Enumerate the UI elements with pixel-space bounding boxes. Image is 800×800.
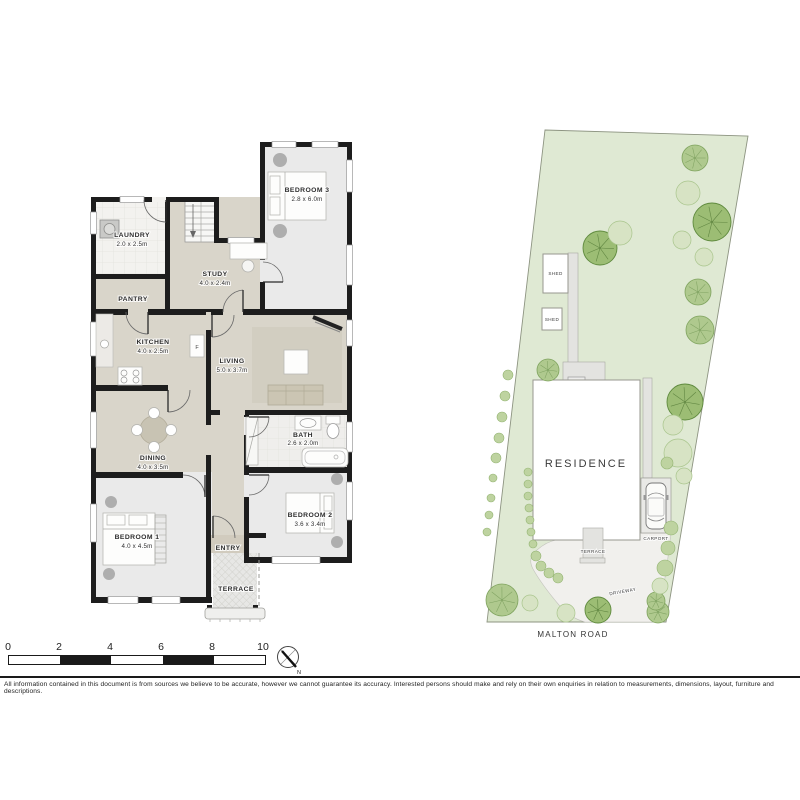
staircase bbox=[185, 200, 217, 242]
scale-tick-2: 2 bbox=[56, 641, 62, 653]
tree-icon bbox=[487, 494, 495, 502]
shed2-label: SHED bbox=[545, 317, 560, 322]
side-table-icon bbox=[331, 473, 343, 485]
tree-icon bbox=[608, 221, 632, 245]
scale-tick-10: 10 bbox=[257, 641, 269, 653]
desk-chair-icon bbox=[242, 260, 254, 272]
footer-divider bbox=[0, 676, 800, 678]
shed1-label: SHED bbox=[548, 271, 563, 276]
tree-icon bbox=[695, 248, 713, 266]
chair-icon bbox=[149, 408, 160, 419]
chair-icon bbox=[132, 425, 143, 436]
car-icon bbox=[644, 483, 669, 529]
bedroom3-label: BEDROOM 3 bbox=[285, 187, 330, 194]
tree-icon bbox=[663, 415, 683, 435]
scale-tick-6: 6 bbox=[158, 641, 164, 653]
bedroom3-dims: 2.8 x 6.0m bbox=[292, 196, 323, 203]
side-path bbox=[568, 253, 578, 363]
bedroom1-label: BEDROOM 1 bbox=[115, 534, 160, 541]
kitchen-sink-icon bbox=[101, 340, 109, 348]
dining-label: DINING bbox=[140, 455, 166, 462]
tree-icon bbox=[526, 516, 534, 524]
side-table-icon bbox=[273, 153, 287, 167]
tree-icon bbox=[522, 595, 538, 611]
tree-icon bbox=[557, 604, 575, 622]
tree-icon bbox=[676, 181, 700, 205]
pillow-icon bbox=[324, 496, 332, 511]
tree-icon bbox=[529, 540, 537, 548]
coffee-table-icon bbox=[284, 350, 308, 374]
bedroom2-dims: 3.6 x 3.4m bbox=[295, 521, 326, 528]
tree-icon bbox=[524, 492, 532, 500]
tree-icon bbox=[531, 551, 541, 561]
tree-icon bbox=[485, 511, 493, 519]
toilet-icon bbox=[327, 424, 339, 439]
tree-icon bbox=[664, 521, 678, 535]
chair-icon bbox=[166, 425, 177, 436]
compass-icon: N bbox=[273, 643, 307, 679]
vanity-icon bbox=[295, 416, 321, 430]
tree-icon bbox=[657, 560, 673, 576]
side-table-icon bbox=[273, 224, 287, 238]
terrace-label: TERRACE bbox=[218, 586, 254, 593]
kitchen-label: KITCHEN bbox=[136, 339, 169, 346]
pantry-floor bbox=[91, 274, 170, 315]
floor-plan: F bbox=[80, 130, 365, 625]
tree-icon bbox=[676, 468, 692, 484]
tree-icon bbox=[503, 370, 513, 380]
pillow-icon bbox=[270, 197, 280, 215]
bedroom2-label: BEDROOM 2 bbox=[288, 512, 333, 519]
tree-icon bbox=[524, 480, 532, 488]
tree-icon bbox=[661, 457, 673, 469]
living-label: LIVING bbox=[219, 358, 244, 365]
carport-path bbox=[643, 378, 652, 478]
living-dims: 5.0 x 3.7m bbox=[217, 367, 248, 374]
laundry-label: LAUNDRY bbox=[114, 232, 150, 239]
scale-bar-segments bbox=[8, 655, 266, 665]
tree-icon bbox=[489, 474, 497, 482]
site-terrace-step bbox=[580, 558, 605, 563]
toilet-tank-icon bbox=[326, 416, 340, 424]
study-label: STUDY bbox=[202, 271, 227, 278]
tree-icon bbox=[544, 568, 554, 578]
sofa-icon bbox=[268, 385, 323, 405]
tree-icon bbox=[497, 412, 507, 422]
floorplan-document: F bbox=[0, 0, 800, 800]
scale-bar: 0 2 4 6 8 10 bbox=[8, 641, 266, 667]
side-table-icon bbox=[331, 536, 343, 548]
tree-icon bbox=[491, 453, 501, 463]
disclaimer-text: All information contained in this docume… bbox=[4, 681, 797, 695]
pillow-icon bbox=[129, 515, 147, 525]
laundry-dims: 2.0 x 2.5m bbox=[117, 241, 148, 248]
chair-icon bbox=[149, 442, 160, 453]
bath-label: BATH bbox=[293, 432, 313, 439]
bedroom1-dims: 4.0 x 4.5m bbox=[122, 543, 153, 550]
step-edge bbox=[210, 619, 260, 622]
desk-icon bbox=[230, 243, 267, 259]
kitchen-dims: 4.0 x 2.5m bbox=[138, 348, 169, 355]
tree-icon bbox=[673, 231, 691, 249]
tree-icon bbox=[553, 573, 563, 583]
bath-dims: 2.6 x 2.0m bbox=[288, 440, 319, 447]
scale-tick-4: 4 bbox=[107, 641, 113, 653]
study-dims: 4.0 x 2.4m bbox=[200, 280, 231, 287]
tree-icon bbox=[527, 528, 535, 536]
tree-icon bbox=[500, 391, 510, 401]
tree-icon bbox=[536, 561, 546, 571]
entry-label: ENTRY bbox=[216, 545, 241, 552]
site-plan: SHED SHED RESIDENCE TERRACE CARPORT DRIV… bbox=[480, 125, 755, 650]
tree-icon bbox=[483, 528, 491, 536]
tree-icon bbox=[524, 468, 532, 476]
dining-table-icon bbox=[140, 416, 168, 444]
residence-label: RESIDENCE bbox=[545, 458, 627, 470]
carport-label: CARPORT bbox=[643, 536, 668, 541]
pillow-icon bbox=[107, 515, 125, 525]
side-table-icon bbox=[105, 496, 117, 508]
site-terrace-label: TERRACE bbox=[581, 549, 606, 554]
dining-dims: 4.0 x 3.5m bbox=[138, 464, 169, 471]
pillow-icon bbox=[270, 176, 280, 194]
tree-icon bbox=[661, 541, 675, 555]
tree-icon bbox=[525, 504, 533, 512]
terrace-step bbox=[205, 608, 265, 619]
side-table-icon bbox=[103, 568, 115, 580]
scale-tick-8: 8 bbox=[209, 641, 215, 653]
road-label: MALTON ROAD bbox=[537, 630, 608, 639]
tree-icon bbox=[652, 578, 668, 594]
pantry-label: PANTRY bbox=[118, 296, 148, 303]
scale-tick-0: 0 bbox=[5, 641, 11, 653]
tree-icon bbox=[494, 433, 504, 443]
